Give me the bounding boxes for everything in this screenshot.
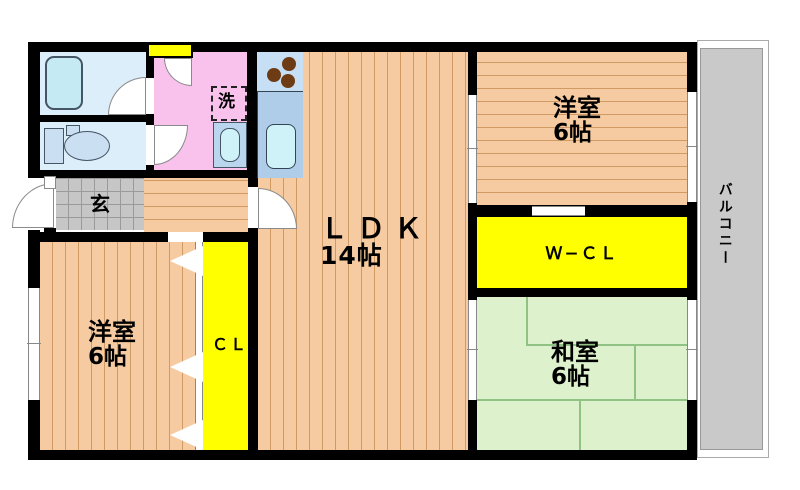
ldk-label: ＬＤＫ 14帖 xyxy=(320,214,431,270)
wall-bottom xyxy=(28,450,697,460)
wall-hall-ldk-upper xyxy=(248,178,258,187)
toilet-tank xyxy=(44,128,64,164)
room-size: 6帖 xyxy=(551,365,599,389)
wall-washroom-bottom xyxy=(154,170,257,178)
western-room-top-label: 洋室 6帖 xyxy=(553,96,601,145)
room-name: 洋室 xyxy=(553,96,601,121)
balcony-label: バルコニー xyxy=(717,182,732,302)
hallway-floor xyxy=(144,178,248,232)
wall-east-divider-b xyxy=(468,203,477,300)
ldk-name: ＬＤＫ xyxy=(320,214,431,243)
wall-east-divider-c xyxy=(468,400,477,460)
doorway-toilet xyxy=(146,125,154,165)
toilet-bowl xyxy=(64,131,110,161)
wall-left-lower-b xyxy=(28,400,40,460)
sliding-door-tick xyxy=(467,148,478,149)
sliding-door-tick xyxy=(467,349,478,350)
window-tick xyxy=(686,349,698,350)
tatami-line xyxy=(634,344,636,400)
wall-east-divider-a xyxy=(468,42,477,95)
wall-western-left-top xyxy=(28,232,168,242)
tatami-line xyxy=(579,400,581,452)
entrance-door-swing xyxy=(12,183,54,228)
sliding-door-western-top xyxy=(468,95,477,203)
tatami-line xyxy=(477,399,687,401)
room-size: 6帖 xyxy=(553,121,601,145)
wall-right-b xyxy=(687,202,697,300)
window-tick xyxy=(27,343,41,344)
tatami-line xyxy=(526,297,528,345)
doorway-bathroom xyxy=(146,78,154,114)
entrance-label: 玄 xyxy=(90,194,110,215)
wall-top xyxy=(28,42,697,52)
entrance-door-leaf xyxy=(44,176,56,189)
ldk-size: 14帖 xyxy=(320,243,431,269)
stove-burner-icon xyxy=(267,68,281,82)
closet-label: ＣＬ xyxy=(212,337,248,354)
window-western-top-balcony xyxy=(687,92,697,202)
kitchen-sink xyxy=(266,124,296,169)
window-japanese-balcony xyxy=(687,300,697,400)
door-walk-in-closet xyxy=(532,206,585,216)
room-name: 洋室 xyxy=(88,320,136,345)
room-size: 6帖 xyxy=(88,345,136,369)
door-western-left xyxy=(168,233,203,242)
wall-washroom-kitchen xyxy=(247,42,257,178)
window-tick xyxy=(686,146,698,147)
western-room-left-label: 洋室 6帖 xyxy=(88,320,136,369)
room-name: 和室 xyxy=(551,340,599,365)
walk-in-closet-label: Ｗ−ＣＬ xyxy=(477,246,687,264)
wall-left-upper xyxy=(28,42,40,178)
doorway-hall-ldk xyxy=(248,187,258,228)
wall-bath-toilet xyxy=(28,115,146,122)
floor-plan: バルコニー 洗 xyxy=(0,0,800,490)
wall-right-a xyxy=(687,42,697,92)
stove-burner-icon xyxy=(281,74,295,88)
washbasin xyxy=(220,128,240,162)
storage-cabinet xyxy=(147,43,193,58)
stove-burner-icon xyxy=(282,57,296,71)
wall-wcl-bottom xyxy=(468,288,697,297)
sliding-door-japanese xyxy=(468,300,477,400)
wall-right-c xyxy=(687,400,697,460)
wall-hall-ldk-lower xyxy=(248,228,258,450)
laundry-label: 洗 xyxy=(218,94,235,112)
window-western-left xyxy=(28,288,40,400)
japanese-room-label: 和室 6帖 xyxy=(551,340,599,389)
bathtub xyxy=(45,56,83,110)
